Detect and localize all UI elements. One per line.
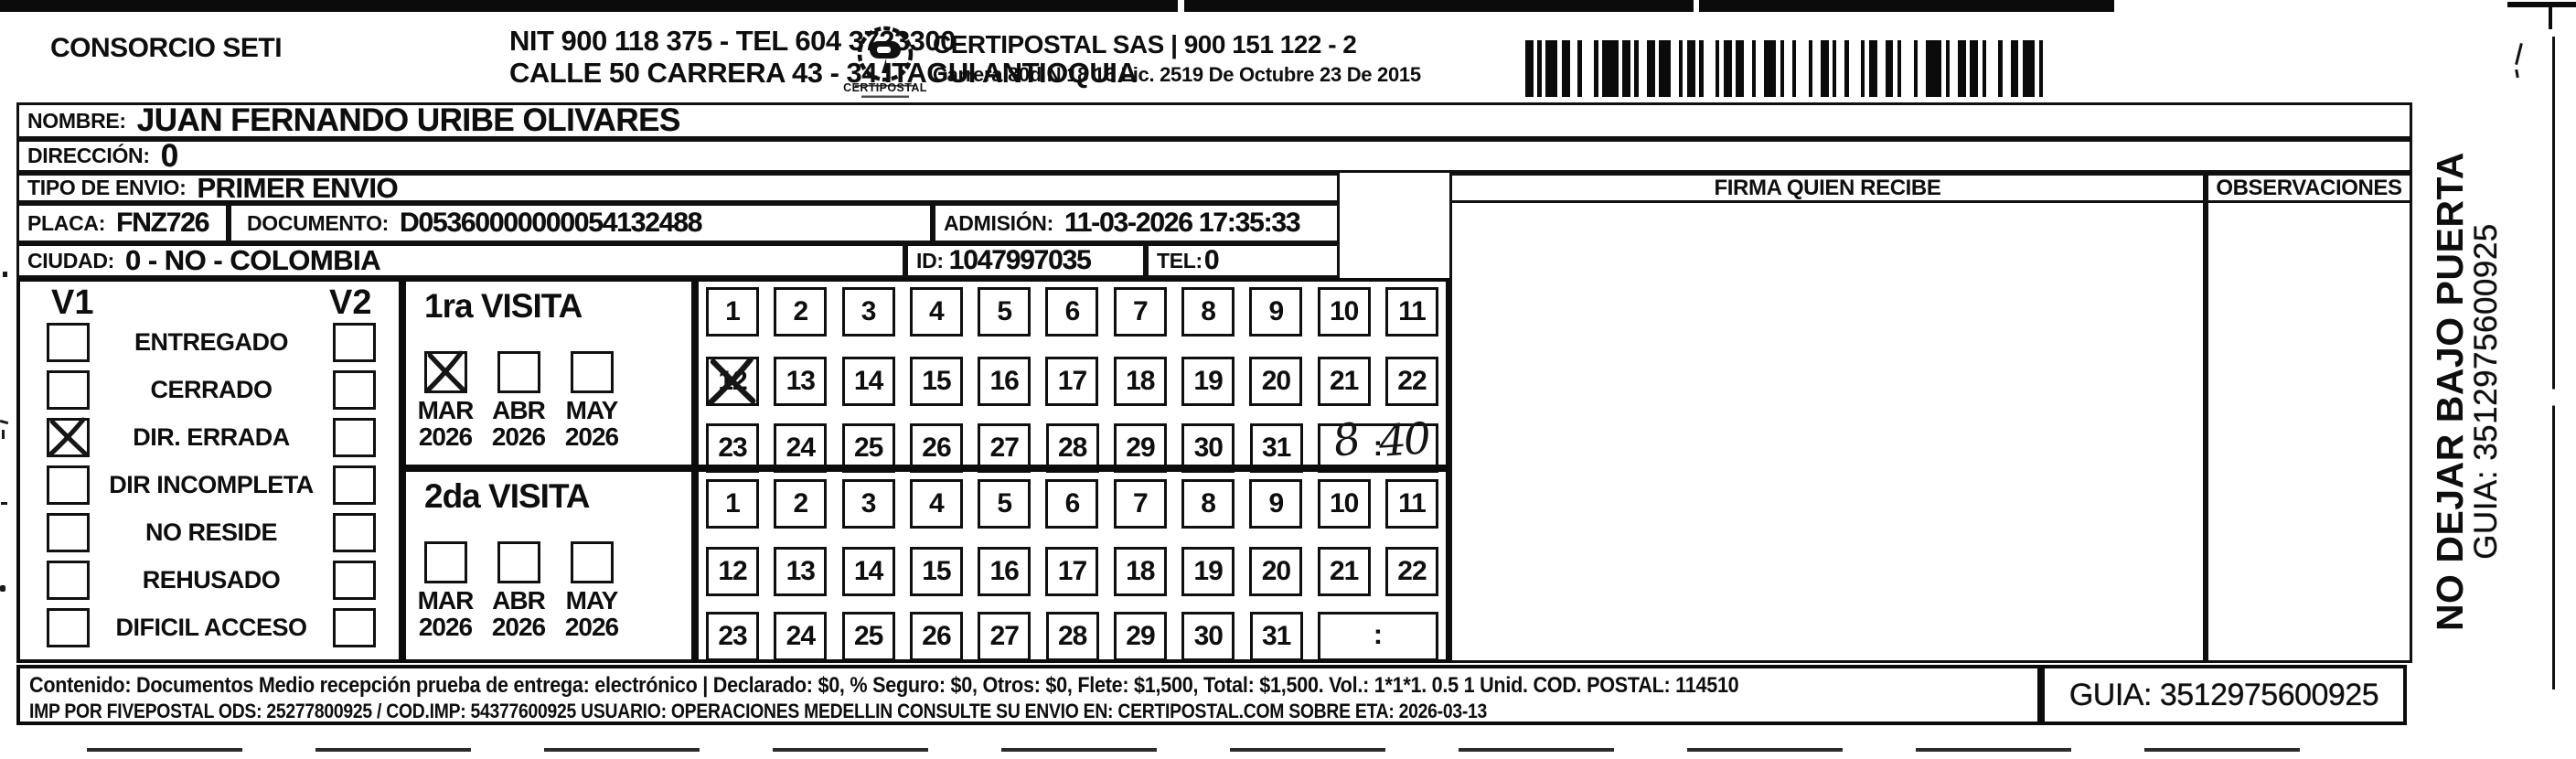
month-checkbox-abr (497, 351, 540, 393)
handwritten-minute: 40 (1377, 417, 1429, 464)
certipostal-license-line: Carrera 80d N 18 16 Lic. 2519 De Octubre… (933, 63, 1421, 87)
nombre-value: JUAN FERNANDO URIBE OLIVARES (137, 102, 680, 139)
status-label-rehusado: REHUSADO (90, 566, 333, 594)
observaciones-area (2206, 203, 2412, 663)
month-name: MAR (418, 398, 474, 424)
v1-column-label: V1 (51, 283, 93, 323)
tipo-envio-value: PRIMER ENVIO (197, 172, 398, 205)
day-cell-10: 10 (1318, 479, 1371, 529)
placa-value: FNZ726 (116, 208, 208, 239)
checkbox-v1-cerrado (47, 370, 90, 410)
visit-time-box: :840 (1318, 423, 1438, 473)
tipo-envio-label: TIPO DE ENVIO: (27, 176, 186, 200)
nombre-label: NOMBRE: (27, 109, 126, 134)
barcode-bar (1764, 40, 1776, 97)
day-cell-31: 31 (1250, 423, 1303, 473)
scan-artifact (0, 420, 8, 424)
barcode-bar (1687, 40, 1695, 97)
barcode-space (1849, 40, 1861, 97)
ciudad-value: 0 - NO - COLOMBIA (125, 244, 380, 277)
day-cell-9: 9 (1249, 479, 1302, 529)
day-cell-1: 1 (706, 479, 759, 529)
checkbox-v1-no-reside (47, 513, 90, 552)
firma-signature-area (1449, 203, 2206, 663)
day-cell-27: 27 (978, 423, 1031, 473)
certipostal-company-line: CERTIPOSTAL SAS | 900 151 122 - 2 (933, 30, 1356, 59)
ciudad-label: CIUDAD: (27, 249, 114, 273)
month-year: 2026 (492, 615, 545, 641)
status-row: REHUSADO (20, 556, 399, 604)
documento-value: D05360000000054132488 (400, 208, 701, 239)
month-option-mar-2026: MAR2026 (412, 541, 479, 640)
month-checkbox-abr (497, 541, 540, 583)
barcode-space (1639, 40, 1647, 97)
shipment-print-line: IMP POR FIVEPOSTAL ODS: 25277800925 / CO… (29, 700, 1487, 723)
day-cell-5: 5 (978, 479, 1031, 529)
do-not-leave-under-door-warning: NO DEJAR BAJO PUERTA (2431, 99, 2470, 684)
observaciones-header-cell: OBSERVACIONES (2206, 173, 2412, 203)
admision-value: 11-03-2026 17:35:33 (1064, 208, 1299, 239)
day-cell-6: 6 (1045, 287, 1098, 337)
day-cell-10: 10 (1318, 287, 1371, 337)
placa-cell: PLACA: FNZ726 (16, 203, 229, 243)
checkbox-v2-dir-errada (333, 418, 376, 457)
day-cell-21: 21 (1318, 547, 1371, 596)
second-visit-panel: 2da VISITA MAR2026ABR2026MAY2026 (402, 468, 695, 663)
day-cell-3: 3 (842, 287, 895, 337)
day-cell-30: 30 (1181, 423, 1235, 473)
day-cell-14: 14 (842, 357, 895, 406)
checkbox-v2-dir-incompleta (333, 465, 376, 505)
day-cell-20: 20 (1249, 547, 1302, 596)
day-cell-25: 25 (842, 423, 895, 473)
day-cell-17: 17 (1045, 547, 1098, 596)
second-visit-day-grid: 1234567891011121314151617181920212223242… (695, 468, 1449, 663)
barcode-bar (2011, 40, 2019, 97)
day-cell-17: 17 (1045, 357, 1098, 406)
status-checkbox-list: ENTREGADOCERRADODIR. ERRADADIR INCOMPLET… (20, 318, 399, 651)
handwritten-x-mark (704, 355, 761, 408)
barcode-space (1877, 40, 1886, 97)
first-visit-panel: 1ra VISITA MAR2026ABR2026MAY2026 (402, 278, 695, 468)
certipostal-delivery-form-scan: CONSORCIO SETI NIT 900 118 375 - TEL 604… (0, 0, 2576, 759)
month-year: 2026 (565, 615, 618, 641)
documento-label: DOCUMENTO: (247, 211, 389, 236)
month-year: 2026 (419, 615, 472, 641)
month-year: 2026 (492, 424, 545, 451)
checkbox-v1-entregado (47, 323, 90, 362)
scan-artifact (0, 585, 5, 592)
day-cell-7: 7 (1114, 479, 1167, 529)
month-year: 2026 (419, 424, 472, 451)
barcode-space (1950, 40, 1958, 97)
day-row: 232425262728293031:840 (706, 423, 1438, 473)
status-row: ENTREGADO (20, 318, 399, 366)
shipment-barcode (1525, 40, 2051, 97)
barcode-space (1986, 40, 1998, 97)
barcode-space (1812, 40, 1821, 97)
checkbox-v1-dir-incompleta (47, 465, 90, 505)
guia-number-box: GUIA: 3512975600925 (2041, 665, 2407, 725)
checkbox-v2-dificil-acceso (333, 608, 376, 647)
day-cell-28: 28 (1046, 612, 1099, 661)
side-note-rotated: NO DEJAR BAJO PUERTA GUIA: 3512975600925 (2431, 99, 2515, 684)
tel-label: TEL: (1157, 249, 1202, 273)
second-visit-months: MAR2026ABR2026MAY2026 (412, 541, 631, 640)
observaciones-header: OBSERVACIONES (2216, 176, 2401, 201)
direccion-row: DIRECCIÓN: 0 (16, 139, 2412, 173)
day-cell-11: 11 (1385, 479, 1438, 529)
day-cell-16: 16 (978, 547, 1031, 596)
scan-right-edge-line (2552, 37, 2555, 690)
shipment-content-line: Contenido: Documentos Medio recepción pr… (29, 673, 1738, 699)
tel-cell: TEL: 0 (1146, 243, 1340, 278)
handwritten-x-mark (422, 349, 469, 395)
day-cell-7: 7 (1114, 287, 1167, 337)
day-cell-22: 22 (1385, 357, 1438, 406)
scan-top-right-artifact (2507, 2, 2576, 7)
admision-cell: ADMISIÓN: 11-03-2026 17:35:33 (933, 203, 1340, 243)
scan-artifact (1, 502, 7, 505)
barcode-space (1918, 40, 1926, 97)
barcode-space (1836, 40, 1844, 97)
day-cell-14: 14 (842, 547, 895, 596)
status-row: NO RESIDE (20, 508, 399, 556)
first-visit-day-grid: 1234567891011121314151617181920212223242… (695, 278, 1449, 468)
month-year: 2026 (565, 424, 618, 451)
barcode-space (1744, 40, 1752, 97)
day-cell-18: 18 (1114, 547, 1167, 596)
scan-artifact (2515, 43, 2523, 65)
day-cell-13: 13 (774, 547, 827, 596)
month-option-mar-2026: MAR2026 (412, 351, 479, 450)
day-cell-1: 1 (706, 287, 759, 337)
barcode-bar (1659, 40, 1671, 97)
day-cell-22: 22 (1385, 547, 1438, 596)
barcode-bar (1926, 40, 1942, 97)
day-cell-2: 2 (774, 287, 827, 337)
logo-caption: CERTIPOSTAL (843, 81, 927, 94)
day-cell-3: 3 (842, 479, 895, 529)
firma-header: FIRMA QUIEN RECIBE (1715, 176, 1941, 201)
scan-artifact (2515, 69, 2519, 78)
status-row: DIFICIL ACCESO (20, 604, 399, 651)
day-cell-29: 29 (1114, 612, 1167, 661)
day-cell-16: 16 (978, 357, 1031, 406)
tel-value: 0 (1204, 245, 1219, 276)
id-cell: ID: 1047997035 (905, 243, 1146, 278)
barcode-bar (1821, 40, 1829, 97)
checkbox-v2-entregado (333, 323, 376, 362)
barcode-space (1570, 40, 1578, 97)
shipment-details-box: Contenido: Documentos Medio recepción pr… (16, 665, 2041, 725)
direccion-label: DIRECCIÓN: (27, 144, 150, 168)
barcode-space (1901, 40, 1913, 97)
certipostal-logo-icon: CERTIPOSTAL (843, 24, 927, 102)
day-cell-5: 5 (978, 287, 1031, 337)
day-cell-29: 29 (1114, 423, 1167, 473)
id-label: ID: (916, 249, 944, 273)
time-colon: : (1374, 618, 1383, 651)
guia-number: GUIA: 3512975600925 (2069, 678, 2378, 713)
barcode-bar (1869, 40, 1877, 97)
placa-label: PLACA: (27, 211, 105, 236)
ciudad-cell: CIUDAD: 0 - NO - COLOMBIA (16, 243, 905, 278)
month-checkbox-may (571, 351, 614, 393)
barcode-bar (1724, 40, 1732, 97)
day-row: 1234567891011 (706, 479, 1438, 529)
barcode-bar (1647, 40, 1655, 97)
day-cell-18: 18 (1114, 357, 1167, 406)
status-row: CERRADO (20, 366, 399, 413)
checkbox-v1-dificil-acceso (47, 608, 90, 647)
day-row: 1234567891011 (706, 287, 1438, 337)
barcode-space (1784, 40, 1792, 97)
status-label-entregado: ENTREGADO (90, 328, 333, 357)
checkbox-v1-rehusado (47, 561, 90, 600)
direccion-value: 0 (161, 138, 178, 175)
barcode-space (1704, 40, 1716, 97)
barcode-bar (1525, 40, 1534, 97)
day-cell-26: 26 (910, 612, 963, 661)
checkbox-v2-rehusado (333, 561, 376, 600)
barcode-bar (1958, 40, 1966, 97)
checkbox-v1-dir-errada (47, 418, 90, 457)
day-cell-4: 4 (910, 287, 963, 337)
firma-header-cell: FIRMA QUIEN RECIBE (1449, 173, 2206, 203)
month-option-abr-2026: ABR2026 (485, 541, 552, 640)
barcode-bar (1562, 40, 1570, 97)
day-cell-20: 20 (1249, 357, 1302, 406)
month-checkbox-mar (424, 541, 467, 583)
scan-corner-artifact (2549, 2, 2552, 29)
first-visit-title: 1ra VISITA (424, 287, 582, 326)
month-name: MAY (566, 588, 618, 615)
day-cell-24: 24 (774, 612, 827, 661)
day-cell-6: 6 (1045, 479, 1098, 529)
barcode-space (1671, 40, 1679, 97)
status-row: DIR. ERRADA (20, 413, 399, 461)
id-value: 1047997035 (949, 245, 1091, 276)
day-cell-21: 21 (1318, 357, 1371, 406)
month-name: ABR (492, 398, 545, 424)
barcode-bar (1622, 40, 1630, 97)
nombre-row: NOMBRE: JUAN FERNANDO URIBE OLIVARES (16, 102, 2412, 139)
day-cell-12: 12 (706, 357, 759, 406)
day-cell-15: 15 (910, 357, 963, 406)
day-row: 232425262728293031: (706, 612, 1438, 661)
barcode-space (2003, 40, 2011, 97)
scan-artifact (3, 272, 7, 277)
admision-label: ADMISIÓN: (944, 211, 1053, 236)
scan-top-edge-artifact (0, 0, 2114, 12)
month-name: MAY (566, 398, 618, 424)
day-cell-19: 19 (1181, 547, 1235, 596)
day-cell-15: 15 (910, 547, 963, 596)
day-cell-25: 25 (842, 612, 895, 661)
day-cell-9: 9 (1249, 287, 1302, 337)
day-cell-13: 13 (774, 357, 827, 406)
month-name: MAR (418, 588, 474, 615)
month-checkbox-mar (424, 351, 467, 393)
barcode-bar (1602, 40, 1619, 97)
sender-company-name: CONSORCIO SETI (50, 33, 282, 64)
status-label-dir-errada: DIR. ERRADA (90, 423, 333, 452)
month-name: ABR (492, 588, 545, 615)
v2-column-label: V2 (329, 283, 371, 323)
status-label-cerrado: CERRADO (90, 376, 333, 404)
second-visit-title: 2da VISITA (424, 477, 590, 516)
status-label-dir-incompleta: DIR INCOMPLETA (90, 471, 333, 499)
day-cell-26: 26 (910, 423, 963, 473)
scan-artifact (2, 430, 5, 439)
day-cell-19: 19 (1181, 357, 1235, 406)
status-label-dificil-acceso: DIFICIL ACCESO (90, 614, 333, 642)
side-guia-number: GUIA: 3512975600925 (2470, 99, 2504, 684)
barcode-space (1582, 40, 1594, 97)
day-cell-23: 23 (706, 612, 759, 661)
month-option-may-2026: MAY2026 (558, 351, 625, 450)
day-cell-4: 4 (910, 479, 963, 529)
day-cell-28: 28 (1046, 423, 1099, 473)
barcode-bar (1736, 40, 1744, 97)
month-option-abr-2026: ABR2026 (485, 351, 552, 450)
handwritten-x-mark (45, 416, 91, 459)
day-cell-31: 31 (1250, 612, 1303, 661)
day-row: 1213141516171819202122 (706, 357, 1438, 406)
handwritten-hour: 8 (1330, 417, 1364, 464)
day-cell-11: 11 (1385, 287, 1438, 337)
barcode-bar (1970, 40, 1978, 97)
month-option-may-2026: MAY2026 (558, 541, 625, 640)
day-row: 1213141516171819202122 (706, 547, 1438, 596)
visit-time-box: : (1318, 612, 1438, 661)
day-cell-30: 30 (1181, 612, 1235, 661)
day-cell-23: 23 (706, 423, 759, 473)
checkbox-v2-no-reside (333, 513, 376, 552)
documento-cell: DOCUMENTO: D05360000000054132488 (229, 203, 933, 243)
day-cell-24: 24 (774, 423, 827, 473)
status-row: DIR INCOMPLETA (20, 461, 399, 508)
first-visit-months: MAR2026ABR2026MAY2026 (412, 351, 631, 450)
day-cell-8: 8 (1181, 479, 1235, 529)
barcode-bar (1886, 40, 1894, 97)
day-cell-8: 8 (1181, 287, 1235, 337)
tipo-envio-row: TIPO DE ENVIO: PRIMER ENVIO (16, 173, 1340, 203)
status-label-no-reside: NO RESIDE (90, 518, 333, 547)
barcode-space (2043, 40, 2051, 97)
barcode-space (1756, 40, 1764, 97)
barcode-bar (1545, 40, 1557, 97)
checkbox-v2-cerrado (333, 370, 376, 410)
month-checkbox-may (571, 541, 614, 583)
scan-bottom-dashed-line (87, 748, 2346, 752)
day-cell-27: 27 (978, 612, 1031, 661)
day-cell-12: 12 (706, 547, 759, 596)
barcode-space (1796, 40, 1808, 97)
day-cell-2: 2 (774, 479, 827, 529)
barcode-bar (2023, 40, 2035, 97)
visit-status-panel: V1 V2 ENTREGADOCERRADODIR. ERRADADIR INC… (16, 278, 402, 663)
